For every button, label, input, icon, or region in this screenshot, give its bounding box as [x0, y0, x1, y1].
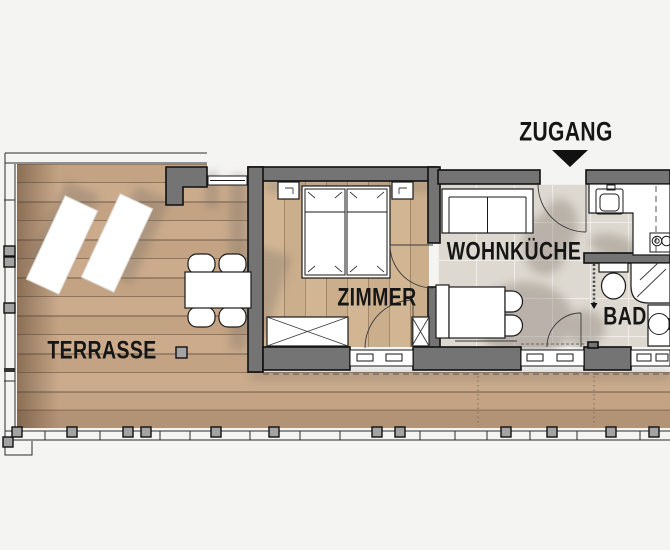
outdoor-chair: [219, 307, 246, 327]
wardrobe: [267, 317, 348, 346]
dining-chair: [505, 291, 523, 312]
dining-chair: [505, 315, 523, 336]
entrance-arrow-icon: [552, 150, 588, 167]
living-kitchen-label: WOHNKÜCHE: [447, 238, 582, 267]
shaft: [412, 317, 429, 346]
dining-bench: [436, 285, 449, 338]
nightstand: [392, 182, 413, 199]
toilet: [599, 263, 628, 299]
sofa: [442, 189, 533, 233]
terrace-label: TERRASSE: [47, 337, 156, 366]
dining-table: [449, 287, 505, 338]
outdoor-table: [185, 272, 251, 308]
outdoor-chair: [188, 254, 215, 274]
shower: [631, 263, 670, 303]
outdoor-chair: [188, 307, 215, 327]
washbasin: [648, 305, 670, 346]
double-bed: [302, 186, 390, 278]
deck-post: [176, 347, 187, 358]
outdoor-chair: [219, 254, 246, 274]
nightstand: [278, 182, 299, 199]
bedroom-label: ZIMMER: [337, 284, 416, 313]
floor-plan: ZUGANG WOHNKÜCHE ZIMMER BAD TERRASSE: [0, 0, 670, 550]
entrance-label: ZUGANG: [519, 117, 613, 148]
bathroom-label: BAD: [603, 303, 646, 332]
floor-plan-graphics: [0, 0, 670, 550]
